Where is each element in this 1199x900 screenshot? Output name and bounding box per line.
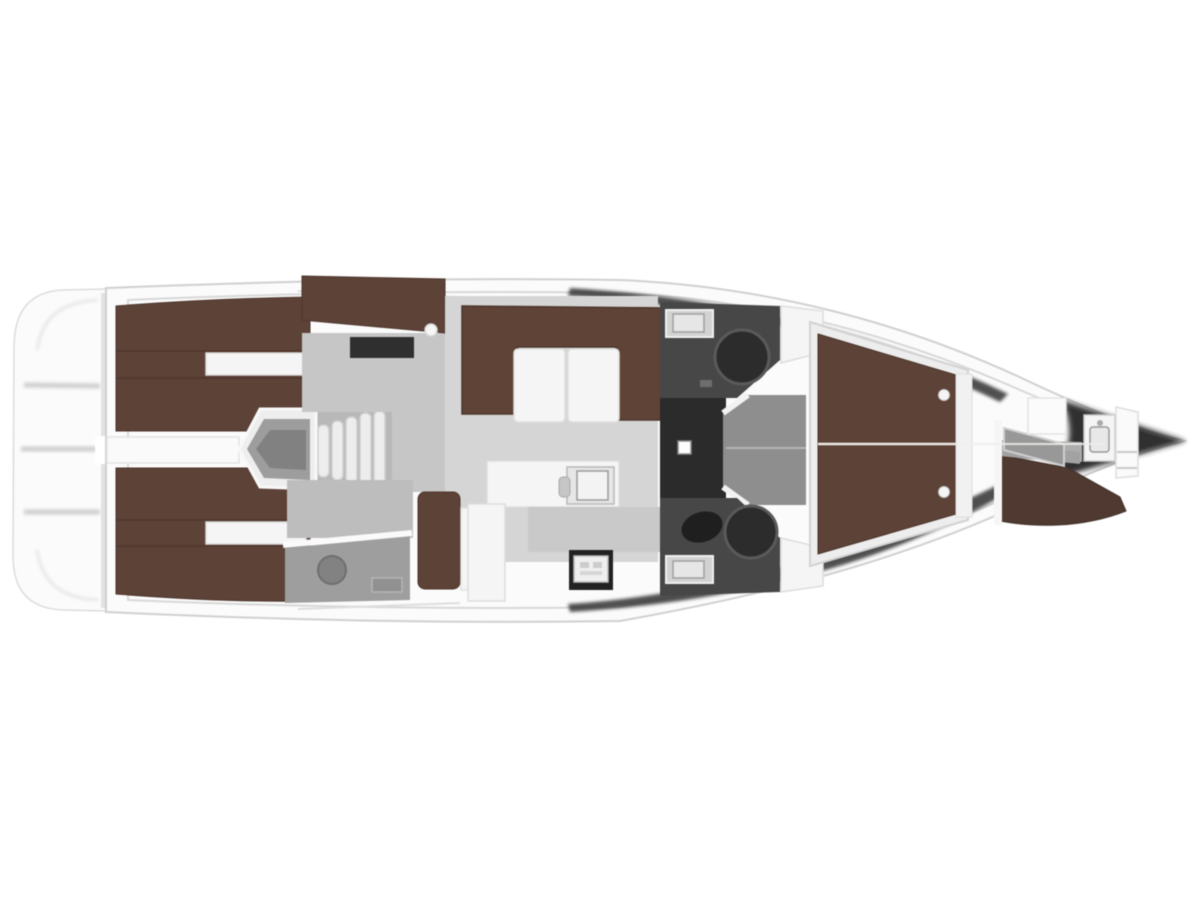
stbd-head-sink-basin bbox=[673, 314, 704, 332]
stbd-head-drain bbox=[700, 380, 712, 387]
galley-counter-side bbox=[468, 504, 505, 601]
cabin-lobby-floor bbox=[723, 395, 806, 505]
owner-bed-headboard bbox=[956, 374, 972, 517]
nav-round-fixture bbox=[425, 324, 437, 336]
port-head-shower bbox=[725, 506, 777, 558]
aft-head bbox=[283, 480, 413, 603]
corridor-hatch-light bbox=[678, 441, 691, 454]
bow-white-panel bbox=[1028, 398, 1066, 434]
port-berth-sideboard bbox=[206, 353, 306, 375]
aft-head-landing bbox=[287, 480, 413, 538]
aft-head-sink bbox=[372, 578, 402, 592]
aft-head-shower bbox=[318, 556, 346, 584]
owner-bed-handle-top bbox=[939, 390, 950, 401]
galley-stove bbox=[569, 550, 613, 590]
bow-bulkhead bbox=[994, 420, 1002, 525]
yacht-deck-plan-image bbox=[0, 0, 1199, 900]
nav-area bbox=[302, 276, 445, 412]
galley-sink-basin bbox=[577, 471, 608, 500]
port-head-sink-basin bbox=[673, 561, 704, 578]
midship-corridor bbox=[660, 395, 806, 505]
owner-bed-handle-bottom bbox=[939, 487, 950, 498]
nav-seat-dark bbox=[350, 337, 414, 358]
stbd-head-shower bbox=[715, 330, 769, 384]
aft-center-passage bbox=[107, 437, 239, 463]
salon-table-left bbox=[514, 349, 565, 422]
galley-floor bbox=[528, 507, 660, 552]
yacht-deck-plan bbox=[0, 0, 1199, 900]
salon-table-right bbox=[568, 349, 619, 422]
chaise-longue bbox=[418, 492, 460, 589]
corridor-dark-floor bbox=[660, 398, 726, 500]
bow-louver-panel bbox=[1116, 407, 1138, 478]
bow-sink-unit bbox=[1084, 415, 1115, 461]
galley-faucet bbox=[559, 477, 570, 497]
